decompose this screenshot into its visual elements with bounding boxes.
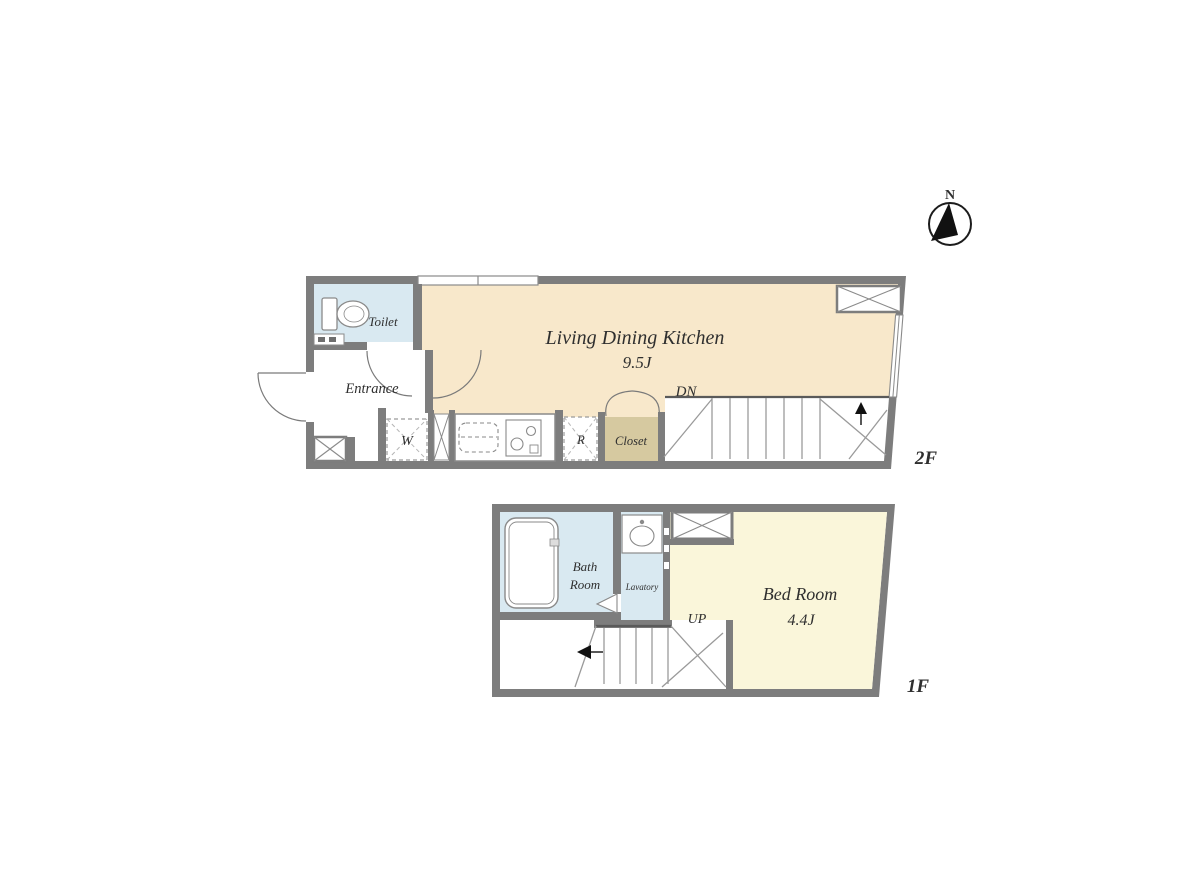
- kitchen-counter: [455, 414, 555, 461]
- floor-plan-page: N: [0, 0, 1193, 892]
- washer-label: W: [401, 434, 414, 449]
- ldk-size-label: 9.5J: [623, 353, 653, 372]
- lavatory-sink-icon: [622, 515, 662, 553]
- toilet-label: Toilet: [368, 314, 398, 329]
- stove-icon: [506, 420, 541, 456]
- compass-north-label: N: [945, 188, 955, 203]
- fridge-label: R: [576, 433, 585, 447]
- floor-label-1f: 1F: [907, 676, 930, 697]
- stair-down-label: DN: [675, 384, 698, 400]
- bedroom-label: Bed Room: [763, 584, 837, 604]
- door-entrance-exterior: [258, 372, 315, 422]
- lavatory-label: Lavatory: [625, 582, 659, 592]
- floor-label-2f: 2F: [914, 448, 938, 469]
- shaft-box-bottom-left-2f: [314, 437, 346, 461]
- compass-rose: N: [929, 188, 971, 245]
- window-top-2f: [418, 276, 538, 285]
- toilet-icon: [322, 298, 369, 330]
- bedroom-size-label: 4.4J: [787, 612, 815, 629]
- bath-label-line2: Room: [569, 577, 600, 592]
- stair-up-label: UP: [688, 612, 707, 627]
- closet-label: Closet: [615, 434, 647, 448]
- floor-plan-1f: Bath Room Lavatory Bed Room 4.4J UP 1F: [492, 504, 929, 697]
- ldk-label: Living Dining Kitchen: [545, 327, 725, 349]
- pipe-space: [434, 414, 449, 460]
- bath-label-line1: Bath: [573, 559, 598, 574]
- floor-plan-2f: Toilet Entrance Living Dining Kitchen 9.…: [258, 276, 937, 469]
- bathtub-icon: [505, 518, 559, 608]
- toilet-counter-icon: [314, 334, 344, 345]
- shaft-box-bedroom: [672, 512, 732, 539]
- entrance-label: Entrance: [344, 381, 399, 397]
- floor-plan-drawing: N: [0, 0, 1193, 892]
- shaft-box-top-right-2f: [837, 286, 901, 312]
- lavatory-wall-ticks: [664, 528, 669, 569]
